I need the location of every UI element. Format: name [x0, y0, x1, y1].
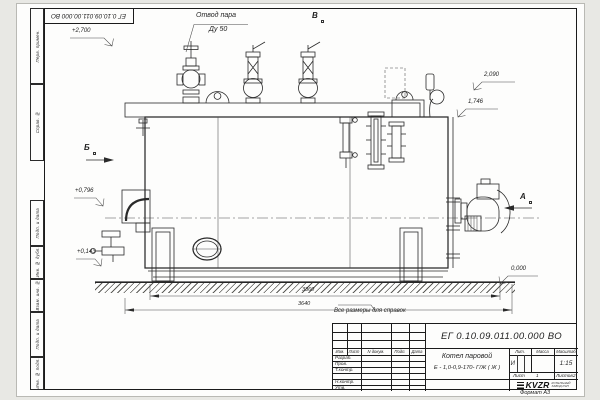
elevation-marks	[70, 38, 538, 284]
gauge-box	[392, 100, 424, 117]
elevation-0796: +0,796	[75, 188, 94, 194]
tb-row-prov: Пров.	[335, 362, 362, 367]
tb-doc-number: ЕГ 0.10.09.011.00.000 ВО	[425, 324, 578, 348]
manhole	[192, 238, 222, 260]
tb-product-name: Котел паровой	[425, 350, 509, 362]
feed-tee	[136, 119, 150, 136]
dimension-3360	[150, 284, 500, 300]
title-block: ЕГ 0.10.09.011.00.000 ВО Изм. Лист N док…	[332, 323, 577, 390]
dimension-label-3640: 3640	[298, 302, 310, 308]
callout-steam-line1: Отвод пара	[196, 12, 236, 19]
support-leg-rear	[400, 228, 422, 281]
kvzr-logo-icon	[517, 382, 524, 389]
tb-product-model: Е - 1,0-0,9-170- Г/Ж ( Ж )	[425, 362, 509, 374]
tb-col-data: Дата	[409, 348, 425, 355]
tb-logo-cell: KVZR КОТЕЛЬНЫЙ ЗАВОД РЭП	[509, 379, 578, 391]
drain-fittings	[91, 231, 125, 262]
tb-lit-value: И	[509, 355, 517, 372]
sheet-ref-mark	[93, 152, 96, 155]
dimension-3640	[125, 284, 512, 314]
tb-col-izm: Изм.	[333, 348, 347, 355]
safety-valve-2	[299, 42, 321, 103]
tb-list-value: 1	[536, 374, 544, 379]
view-b-arrow	[86, 157, 114, 163]
steam-outlet-valve	[177, 41, 205, 103]
feed-elbow	[122, 190, 150, 232]
drawing-canvas: Перв. примен. Справ. № Подп. и дата Инв.…	[0, 0, 600, 400]
burner-assembly	[455, 179, 510, 233]
format-note: Формат А3	[520, 391, 550, 397]
reference-note: Все размеры для справок	[334, 308, 406, 314]
level-column-1	[366, 112, 386, 169]
view-label-b: Б	[84, 144, 90, 152]
tb-row-razrab: Разраб.	[335, 356, 362, 361]
view-a-arrow	[504, 205, 532, 211]
tb-row-nkontr: Н.контр.	[335, 380, 362, 385]
tb-scale-header: Масштаб	[554, 348, 578, 355]
kvzr-logo-subtext: КОТЕЛЬНЫЙ ЗАВОД РЭП	[552, 382, 571, 389]
top-plate	[125, 103, 420, 117]
elevation-1746: 1,746	[468, 99, 483, 105]
elevation-2090: 2,090	[484, 72, 499, 78]
sheet-ref-mark	[529, 201, 532, 204]
tb-col-list: Лист	[347, 348, 361, 355]
support-leg-front	[152, 228, 174, 281]
elevation-0000: 0,000	[511, 266, 526, 272]
tb-scale-value: 1:15	[554, 355, 578, 372]
view-label-a: А	[520, 193, 526, 201]
elevation-2700: +2,700	[72, 28, 91, 34]
tb-listov-value: 2	[573, 374, 578, 379]
safety-valve-1	[244, 42, 266, 103]
boiler-body	[145, 117, 448, 277]
view-label-v: В	[312, 12, 318, 20]
tb-lit-header: Лит.	[509, 348, 531, 355]
tb-row-tkontr: Т.контр.	[335, 368, 362, 373]
tb-list-label: Лист	[513, 374, 528, 379]
kvzr-logo-text: KVZR	[526, 380, 550, 390]
tb-mass-header: Масса	[531, 348, 554, 355]
elevation-0143: +0,143	[77, 249, 96, 255]
sheet-ref-mark	[321, 20, 324, 23]
tb-col-podp: Подп.	[391, 348, 409, 355]
lifting-lug-rear	[396, 92, 413, 101]
siphon-tube	[430, 90, 444, 117]
water-level-gauge	[340, 117, 357, 168]
tb-listov-label: Листов	[556, 374, 572, 379]
level-column-2	[387, 122, 406, 162]
dimension-label-3360: 3360	[302, 288, 314, 294]
tb-col-doc: N докум.	[361, 348, 391, 355]
lifting-lug-front	[206, 92, 229, 104]
callout-steam-line2: Ду 50	[209, 26, 227, 33]
tb-row-utv: Утв.	[335, 386, 362, 391]
